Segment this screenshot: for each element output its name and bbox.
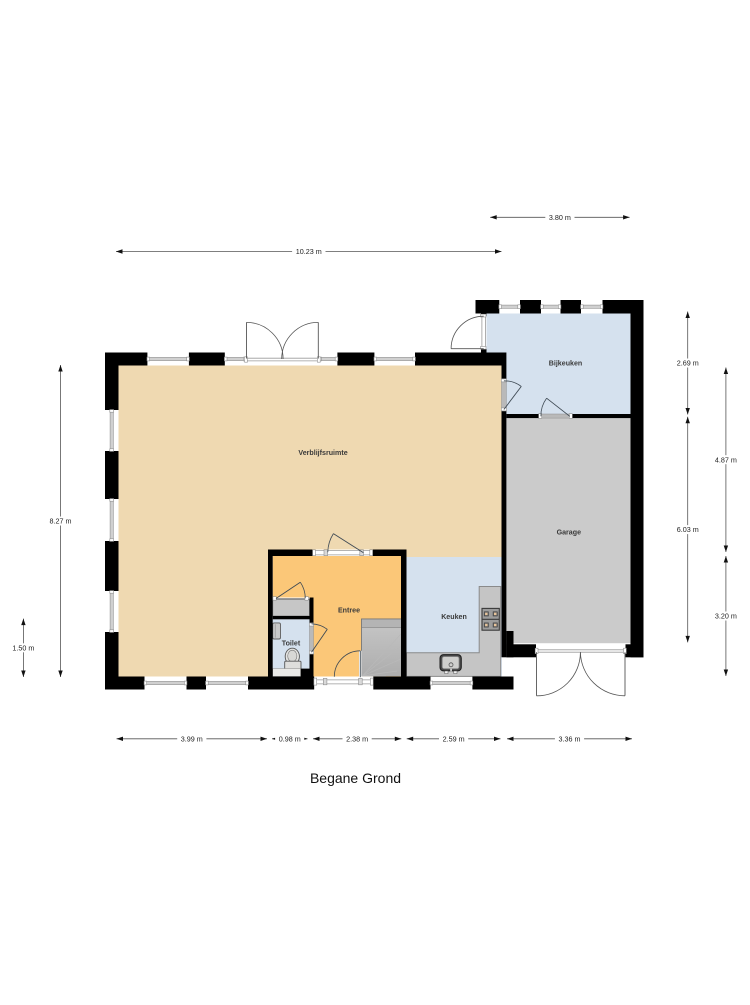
svg-text:6.03 m: 6.03 m <box>677 525 699 534</box>
svg-text:Begane Grond: Begane Grond <box>310 770 401 786</box>
svg-text:Toilet: Toilet <box>282 639 301 647</box>
svg-text:8.27 m: 8.27 m <box>50 517 72 526</box>
svg-text:2.69 m: 2.69 m <box>677 359 699 368</box>
svg-text:3.80 m: 3.80 m <box>549 213 571 222</box>
svg-text:Keuken: Keuken <box>441 613 467 621</box>
svg-text:Entree: Entree <box>338 606 360 614</box>
svg-text:2.59 m: 2.59 m <box>443 734 465 743</box>
svg-text:Verblijfsruimte: Verblijfsruimte <box>298 449 347 457</box>
svg-text:10.23 m: 10.23 m <box>296 247 322 256</box>
svg-text:2.38 m: 2.38 m <box>346 734 368 743</box>
svg-text:Bijkeuken: Bijkeuken <box>549 359 583 367</box>
svg-text:Garage: Garage <box>557 528 582 536</box>
svg-text:1.50 m: 1.50 m <box>12 643 34 652</box>
svg-text:3.36 m: 3.36 m <box>559 734 581 743</box>
svg-text:4.87 m: 4.87 m <box>715 455 737 464</box>
svg-text:0.98 m: 0.98 m <box>279 734 301 743</box>
svg-text:3.99 m: 3.99 m <box>181 734 203 743</box>
svg-text:3.20 m: 3.20 m <box>715 612 737 621</box>
